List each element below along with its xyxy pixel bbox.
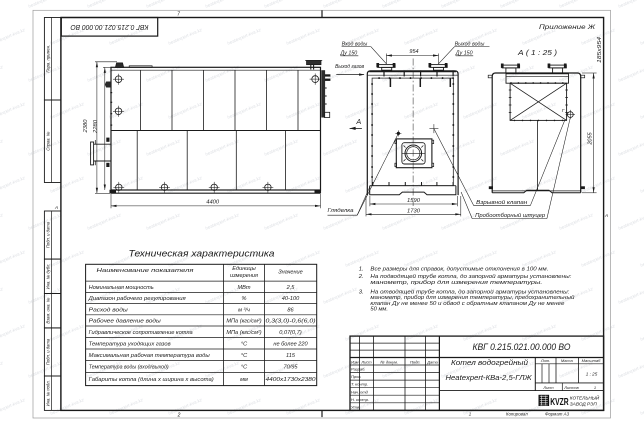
svg-text:115: 115 [286,353,296,359]
svg-text:40-100: 40-100 [282,296,300,302]
svg-text:2.: 2. [358,274,364,280]
svg-text:Инв. № подл.: Инв. № подл. [46,380,51,406]
svg-text:А ( 1 : 25 ): А ( 1 : 25 ) [517,48,558,57]
svg-text:Взрывной клапан: Взрывной клапан [476,199,527,206]
svg-text:Значение: Значение [278,270,303,276]
svg-text:Разраб.: Разраб. [351,367,365,372]
svg-text:Пров.: Пров. [351,374,362,379]
svg-text:измерения: измерения [230,273,258,279]
svg-text:КВГ 0.215.021.00.000 ВО: КВГ 0.215.021.00.000 ВО [473,342,571,353]
svg-text:Подп. и дата: Подп. и дата [46,338,51,365]
svg-text:КОТЕЛЬНЫЙ: КОТЕЛЬНЫЙ [570,394,600,401]
svg-text:Дата: Дата [426,359,438,364]
svg-text:0,07(0,7): 0,07(0,7) [279,330,302,336]
svg-text:Справ. №: Справ. № [46,131,51,150]
svg-text:2280: 2280 [93,119,99,134]
svg-text:Наименование показателя: Наименование показателя [97,268,194,274]
svg-text:МПа (кгс/см²): МПа (кгс/см²) [226,319,261,325]
svg-text:86: 86 [287,307,294,313]
svg-text:Листов: Листов [563,385,579,390]
svg-text:Копировал: Копировал [506,411,528,416]
svg-text:1590: 1590 [407,198,421,204]
svg-text:4400х1730х2380: 4400х1730х2380 [266,377,317,383]
svg-text:1 : 25: 1 : 25 [586,372,598,377]
svg-text:0,3(3,0)-0,6(6,0): 0,3(3,0)-0,6(6,0) [266,319,316,325]
svg-text:KVZR: KVZR [550,396,569,408]
svg-text:°С: °С [241,365,248,371]
svg-text:Н. контр.: Н. контр. [351,397,369,402]
svg-text:Изм: Изм [351,359,359,364]
svg-text:Г: Г [562,108,565,114]
svg-text:Все размеры для справок, допус: Все размеры для справок, допустимые откл… [370,266,548,272]
svg-text:1: 1 [594,385,596,390]
svg-text:Габариты котла (длина х ширина: Габариты котла (длина х ширина х высота) [89,377,214,383]
svg-text:Взам. инв. №: Взам. инв. № [46,297,51,323]
svg-text:Т. контр.: Т. контр. [351,382,368,387]
svg-text:7: 7 [177,12,180,18]
svg-text:Нач. отд: Нач. отд [351,389,369,394]
svg-text:Лист: Лист [542,385,554,390]
svg-text:МВт: МВт [237,285,250,291]
svg-text:А: А [54,205,58,210]
svg-text:1.: 1. [359,266,364,272]
svg-text:2055: 2055 [587,131,593,145]
svg-text:№ докум.: № докум. [380,359,398,364]
svg-text:Выход газов: Выход газов [335,64,364,70]
svg-text:1730: 1730 [407,209,421,215]
svg-text:50 мм.: 50 мм. [370,307,388,313]
svg-text:°С: °С [241,353,248,359]
svg-text:Гляделка: Гляделка [328,208,354,214]
svg-text:манометр, прибор для измерения: манометр, прибор для измерения температу… [370,280,542,286]
svg-text:Единицы: Единицы [232,266,255,272]
svg-text:Рабочее давление воды: Рабочее давление воды [89,319,161,325]
svg-text:954: 954 [409,49,418,55]
svg-text:клапан Ду не менее 50 и обвод: клапан Ду не менее 50 и обвод с обратным… [370,301,565,307]
svg-text:Утв.: Утв. [351,404,360,409]
svg-text:4400: 4400 [206,200,220,206]
svg-text:Техническая характеристика: Техническая характеристика [129,248,275,258]
svg-text:мм: мм [240,377,248,383]
svg-text:МПа (кгс/см²): МПа (кгс/см²) [226,330,261,336]
svg-text:м ³/ч: м ³/ч [238,307,250,313]
svg-text:Heatexpert-КВа-2,5-ГЛЖ: Heatexpert-КВа-2,5-ГЛЖ [446,373,533,382]
svg-text:%: % [242,296,247,302]
svg-text:ЗАВОД РЭП: ЗАВОД РЭП [570,402,598,407]
svg-text:не более 220: не более 220 [273,341,308,347]
svg-text:Формат А3: Формат А3 [545,411,570,416]
svg-text:185х954: 185х954 [597,37,603,63]
svg-text:Максимальная рабочая температу: Максимальная рабочая температура воды [89,353,210,359]
svg-text:КВГ 0.215.021.00.000 ВО: КВГ 0.215.021.00.000 ВО [70,23,148,32]
svg-text:Диапазон рабочего регулировани: Диапазон рабочего регулирования [88,296,186,302]
svg-text:Приложение Ж: Приложение Ж [539,24,596,31]
svg-text:Перв. примен.: Перв. примен. [46,45,51,73]
svg-text:Гидравлическое сопротивление к: Гидравлическое сопротивление котла [89,330,193,336]
svg-text:Номинальная мощность: Номинальная мощность [89,285,154,291]
svg-text:А: А [355,117,361,126]
svg-text:Котел водогрейный: Котел водогрейный [451,358,528,367]
svg-text:2380: 2380 [83,119,89,134]
svg-text:3.: 3. [359,289,364,295]
svg-text:Подп. и дата: Подп. и дата [46,221,51,248]
svg-text:Инв. № дубл.: Инв. № дубл. [46,263,51,289]
svg-text:Лист: Лист [360,359,372,364]
svg-text:Расход воды: Расход воды [89,307,128,313]
svg-text:2,5: 2,5 [286,285,296,291]
svg-text:Лит.: Лит. [540,358,550,363]
svg-text:Подп.: Подп. [410,359,421,364]
svg-text:2: 2 [177,412,181,418]
svg-text:А: А [604,213,608,218]
svg-text:Масштаб: Масштаб [582,358,601,363]
svg-text:°С: °С [241,341,248,347]
svg-text:Температура воды (вход/выход): Температура воды (вход/выход) [89,365,169,371]
svg-text:Температура уходящих газов: Температура уходящих газов [89,341,171,347]
svg-text:70/95: 70/95 [284,365,299,371]
svg-text:Пробоотборный штуцер: Пробоотборный штуцер [475,212,545,219]
svg-text:Масса: Масса [561,358,574,363]
